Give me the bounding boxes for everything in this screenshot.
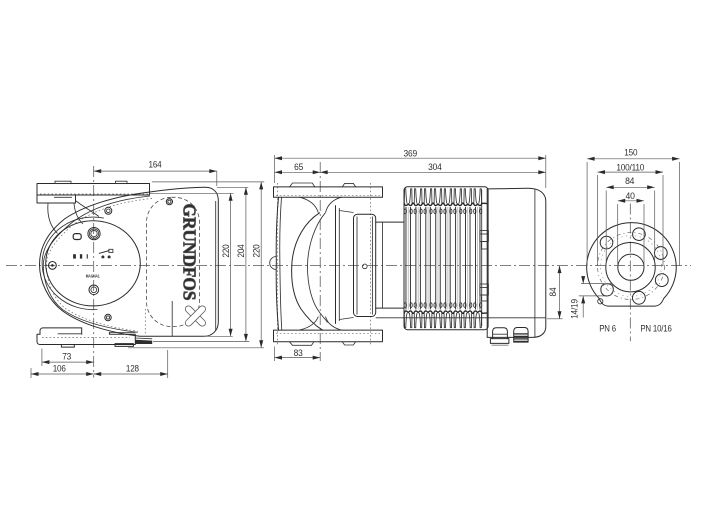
svg-text:220: 220 bbox=[251, 244, 261, 257]
svg-text:GRUNDFOS: GRUNDFOS bbox=[179, 204, 199, 301]
svg-text:40: 40 bbox=[626, 191, 635, 201]
svg-text:204: 204 bbox=[236, 244, 246, 257]
svg-text:164: 164 bbox=[149, 160, 162, 170]
svg-text:PN 6: PN 6 bbox=[599, 323, 616, 333]
svg-text:MAGNA1: MAGNA1 bbox=[86, 274, 100, 279]
svg-text:73: 73 bbox=[62, 351, 71, 361]
svg-text:106: 106 bbox=[53, 364, 66, 374]
svg-text:220: 220 bbox=[221, 244, 231, 257]
svg-text:369: 369 bbox=[404, 149, 418, 159]
svg-text:84: 84 bbox=[548, 287, 558, 296]
svg-text:83: 83 bbox=[294, 348, 303, 358]
svg-text:14/19: 14/19 bbox=[569, 299, 579, 319]
svg-text:PN 10/16: PN 10/16 bbox=[640, 323, 671, 333]
svg-text:150: 150 bbox=[624, 148, 637, 158]
svg-text:304: 304 bbox=[428, 162, 442, 172]
svg-text:65: 65 bbox=[294, 162, 303, 172]
svg-text:84: 84 bbox=[625, 176, 634, 186]
svg-text:100/110: 100/110 bbox=[616, 162, 644, 172]
svg-text:128: 128 bbox=[126, 364, 139, 374]
